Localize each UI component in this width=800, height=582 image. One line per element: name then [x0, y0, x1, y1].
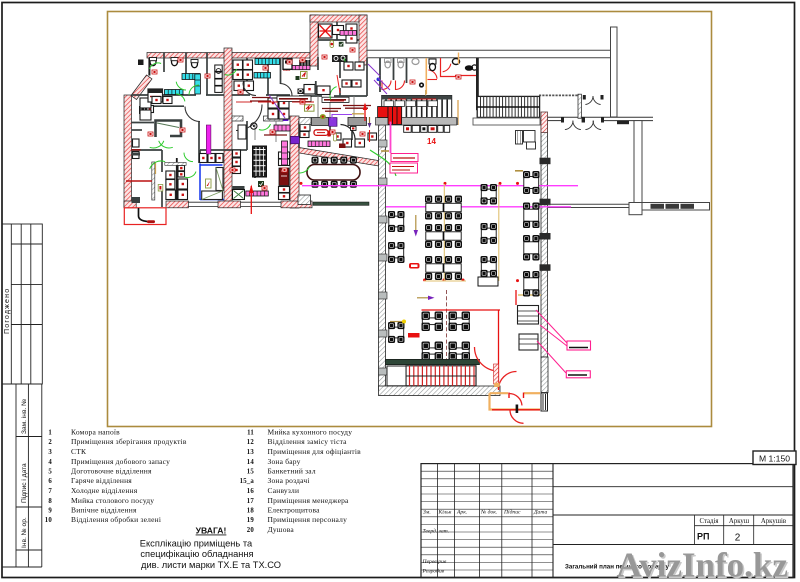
svg-text:AvizInfo.kz: AvizInfo.kz — [617, 546, 788, 582]
svg-text:Зона роздачі: Зона роздачі — [268, 476, 310, 485]
svg-text:Експлікацію приміщень та: Експлікацію приміщень та — [140, 539, 253, 549]
svg-text:2: 2 — [48, 439, 52, 446]
svg-text:Аркуш: Аркуш — [729, 518, 750, 525]
svg-text:Погоджено: Погоджено — [4, 288, 11, 334]
svg-text:14: 14 — [427, 137, 436, 146]
svg-text:9: 9 — [48, 508, 52, 515]
svg-text:Банкетний зал: Банкетний зал — [268, 467, 316, 476]
svg-text:Відділення обробки зелені: Відділення обробки зелені — [71, 515, 161, 524]
svg-text:Зона бару: Зона бару — [268, 457, 301, 466]
svg-text:Аркушів: Аркушів — [761, 518, 786, 525]
svg-text:Мийка кухонного посуду: Мийка кухонного посуду — [268, 428, 353, 437]
svg-text:Перевірив: Перевірив — [422, 559, 447, 565]
svg-text:18: 18 — [247, 508, 255, 515]
svg-text:М 1:150: М 1:150 — [759, 454, 790, 464]
svg-text:Арк.: Арк. — [456, 510, 467, 516]
svg-text:Кільк: Кільк — [438, 510, 452, 516]
svg-text:15: 15 — [247, 469, 255, 476]
svg-text:Інв. № ор.: Інв. № ор. — [21, 517, 28, 548]
svg-text:1: 1 — [48, 430, 52, 437]
svg-text:12: 12 — [247, 439, 255, 446]
svg-text:Приміщення персоналу: Приміщення персоналу — [268, 515, 348, 524]
svg-text:Зм.: Зм. — [423, 510, 431, 516]
svg-text:Підпис і дата: Підпис і дата — [20, 463, 28, 503]
svg-text:Приміщення добового запасу: Приміщення добового запасу — [71, 457, 170, 466]
svg-text:16: 16 — [247, 488, 255, 495]
svg-text:Відділення замісу тіста: Відділення замісу тіста — [268, 437, 348, 446]
svg-text:Випічне відділення: Випічне відділення — [71, 506, 137, 515]
svg-text:Гаряче відділення: Гаряче відділення — [71, 476, 132, 485]
svg-text:РП: РП — [697, 532, 709, 542]
svg-text:СТК: СТК — [71, 447, 87, 456]
svg-text:3: 3 — [48, 449, 52, 456]
svg-text:2: 2 — [735, 533, 741, 544]
svg-text:Стадія: Стадія — [700, 518, 719, 525]
svg-text:Холодне відділення: Холодне відділення — [71, 486, 138, 495]
svg-text:6: 6 — [48, 478, 52, 485]
svg-text:Комора напоїв: Комора напоїв — [71, 428, 120, 437]
svg-text:20: 20 — [247, 527, 255, 534]
svg-text:Тверд. зат.: Тверд. зат. — [423, 528, 450, 535]
svg-text:Дата: Дата — [533, 510, 547, 516]
svg-text:Душова: Душова — [268, 525, 295, 534]
svg-text:19: 19 — [247, 517, 255, 524]
svg-text:Приміщення зберігання продукті: Приміщення зберігання продуктів — [71, 437, 187, 446]
svg-text:4: 4 — [48, 459, 52, 466]
svg-text:17: 17 — [247, 498, 255, 505]
svg-text:специфікацію обладнання: специфікацію обладнання — [140, 549, 253, 559]
svg-text:8: 8 — [48, 498, 52, 505]
svg-text:Приміщення для офіціантів: Приміщення для офіціантів — [268, 447, 362, 456]
svg-text:УВАГА!: УВАГА! — [196, 526, 227, 536]
svg-text:Зам. інв. №: Зам. інв. № — [20, 399, 28, 434]
svg-text:Електрощитова: Електрощитова — [268, 506, 321, 515]
svg-text:Приміщення менеджера: Приміщення менеджера — [268, 496, 350, 505]
svg-text:Доготовочне відділення: Доготовочне відділення — [71, 467, 152, 476]
svg-text:15_а: 15_а — [240, 478, 255, 485]
svg-text:Санвузли: Санвузли — [268, 486, 300, 495]
svg-text:див. листи марки ТХ.Е та ТХ.СО: див. листи марки ТХ.Е та ТХ.СО — [141, 560, 281, 570]
svg-text:Підпис: Підпис — [503, 509, 521, 516]
svg-text:5: 5 — [48, 469, 52, 476]
svg-text:11: 11 — [247, 430, 254, 437]
svg-text:13: 13 — [247, 449, 255, 456]
svg-text:14: 14 — [247, 459, 255, 466]
svg-text:№ док.: № док. — [480, 509, 497, 516]
svg-text:7: 7 — [48, 488, 52, 495]
svg-text:Мийка столового посуду: Мийка столового посуду — [71, 496, 154, 505]
svg-text:Розробив: Розробив — [422, 568, 445, 575]
svg-text:10: 10 — [45, 517, 53, 524]
